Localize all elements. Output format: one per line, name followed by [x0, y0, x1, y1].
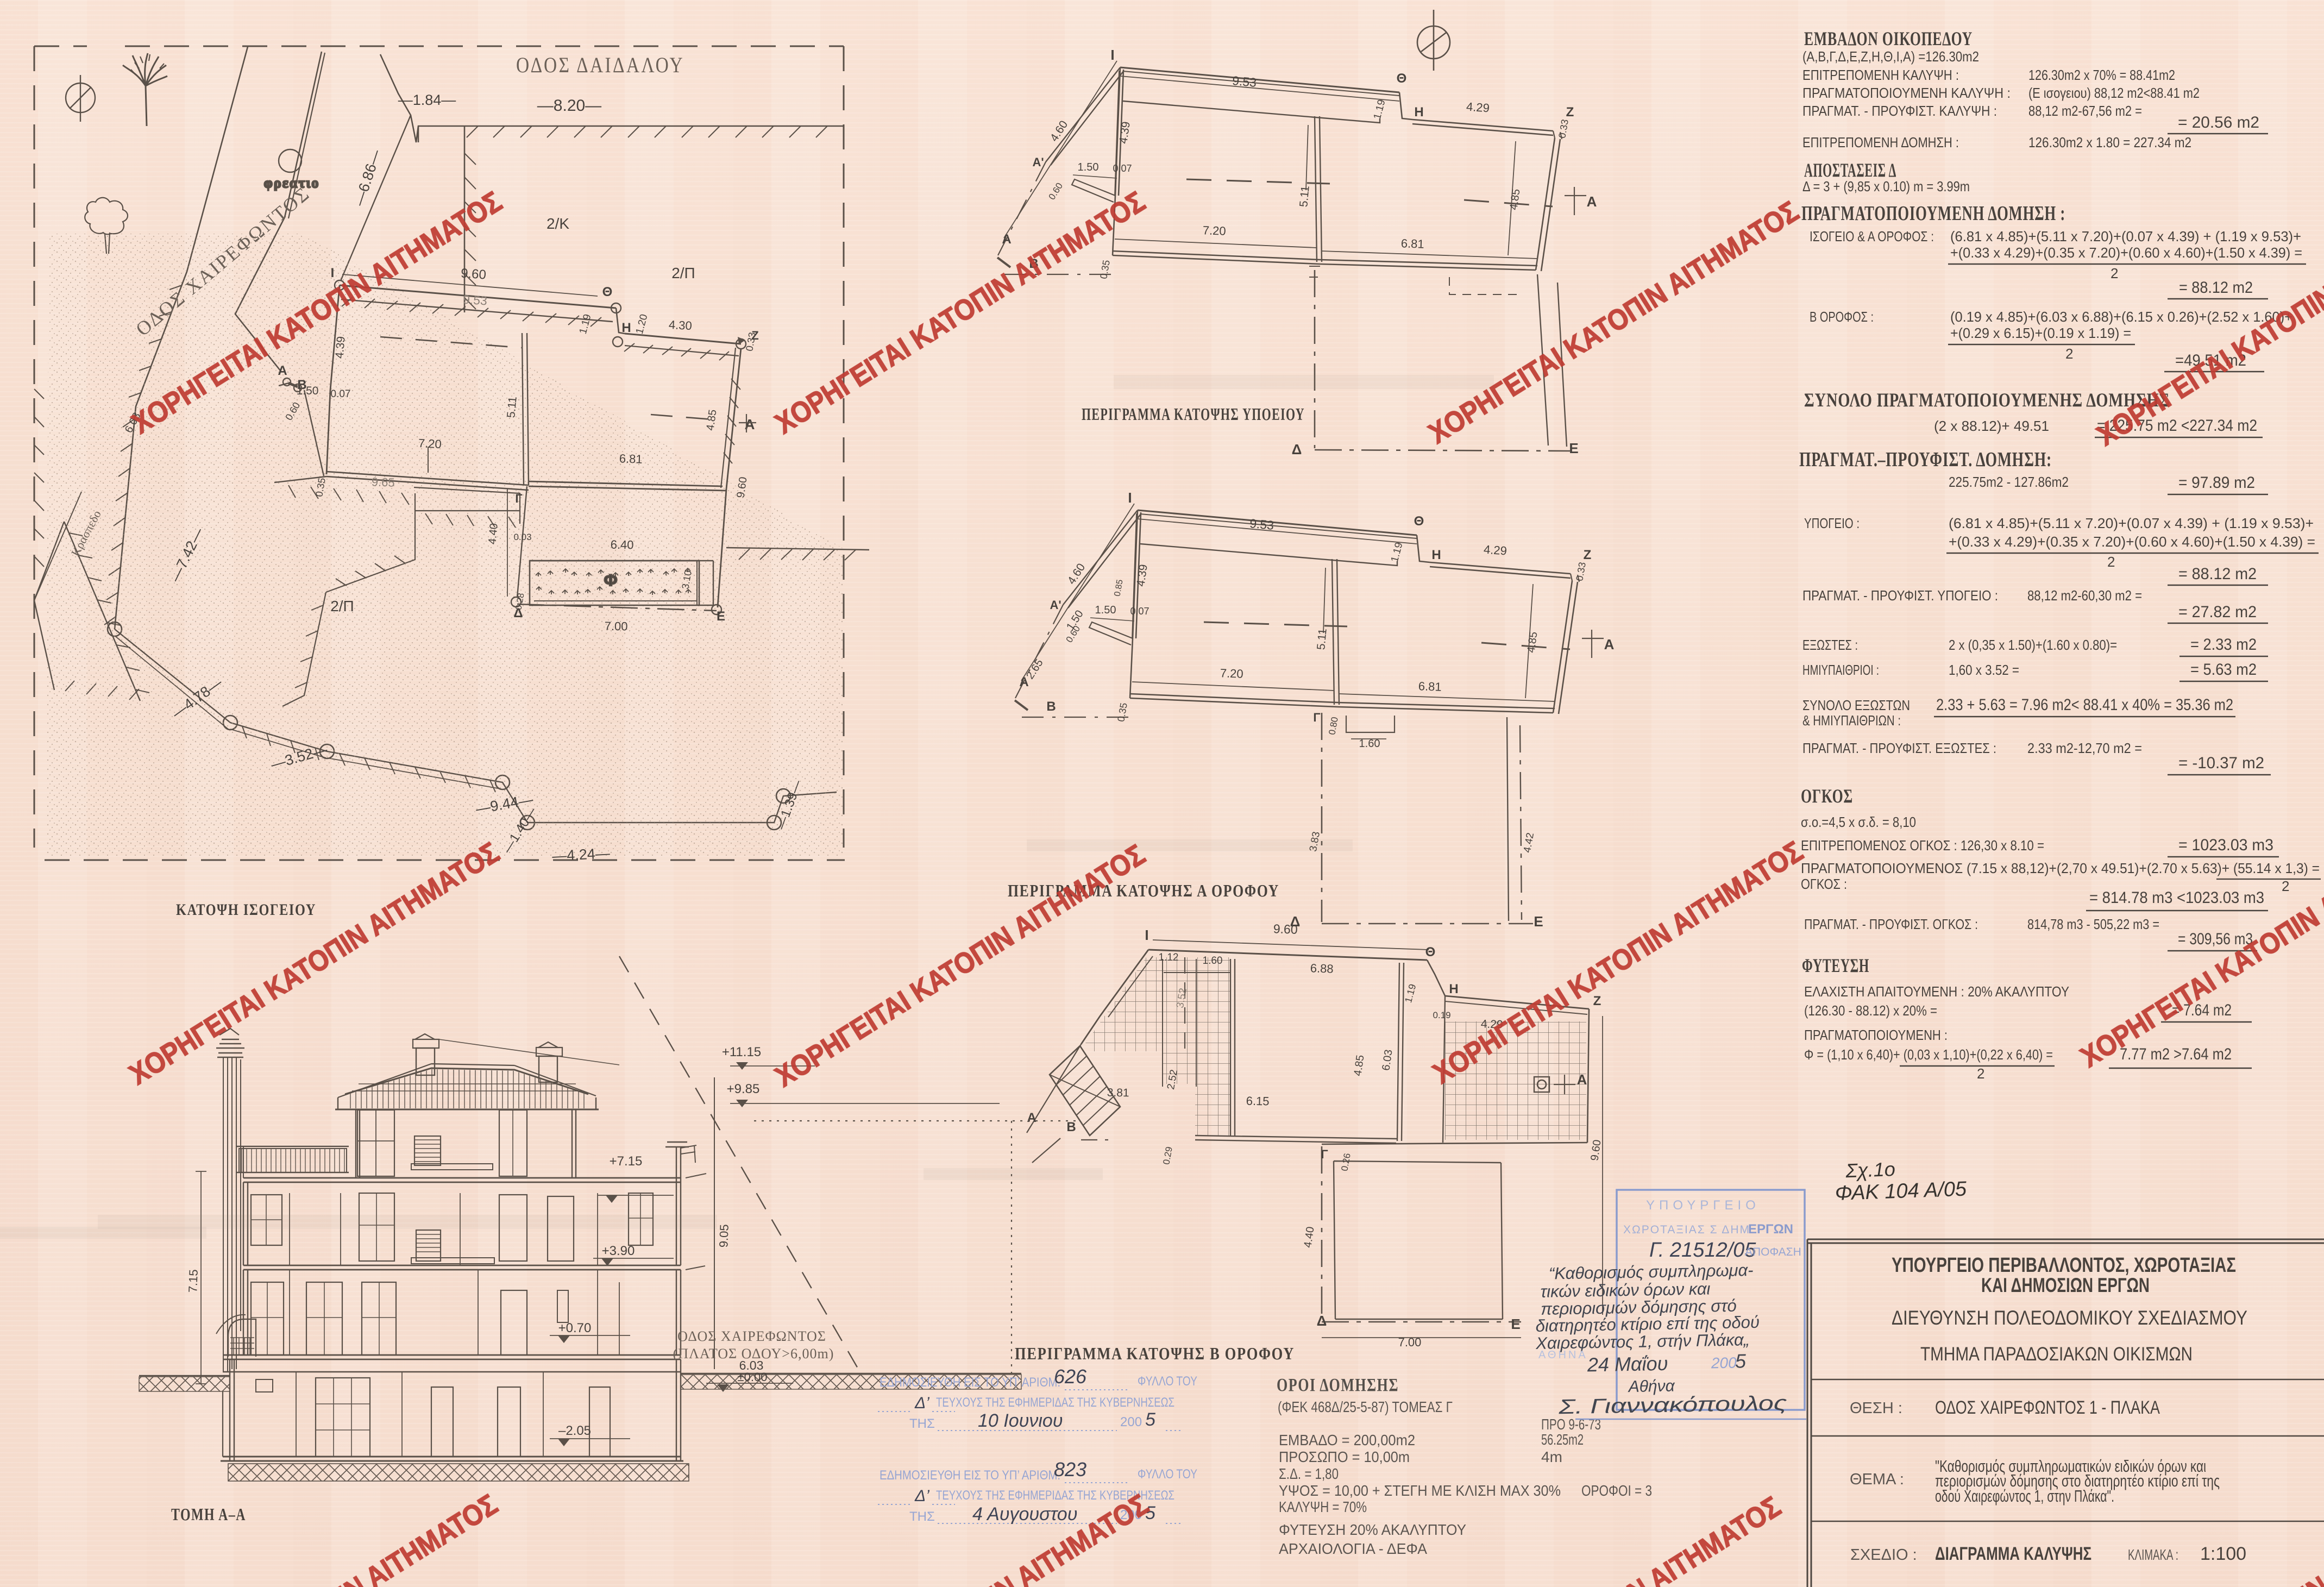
svg-text:B: B [1046, 699, 1056, 714]
svg-text:2: 2 [1977, 1065, 1984, 1082]
svg-text:1:100: 1:100 [2200, 1544, 2246, 1564]
svg-text:& ΗΜΙΥΠΑΙΘΡΙΩΝ :: & ΗΜΙΥΠΑΙΘΡΙΩΝ : [1802, 712, 1901, 729]
svg-text:I: I [1145, 927, 1148, 943]
svg-text:4.39: 4.39 [1134, 563, 1150, 587]
svg-text:6.88: 6.88 [1310, 961, 1334, 975]
svg-text:4.39: 4.39 [333, 336, 347, 359]
svg-text:823: 823 [1054, 1458, 1086, 1481]
svg-text:A': A' [1032, 155, 1044, 169]
svg-text:0.85: 0.85 [1113, 579, 1125, 597]
svg-text:ΗΜΙΥΠΑΙΘΡΙΟΙ :: ΗΜΙΥΠΑΙΘΡΙΟΙ : [1802, 662, 1879, 678]
svg-text:Γ. 21512/05: Γ. 21512/05 [1649, 1239, 1756, 1262]
svg-text:Δ: Δ [1317, 1313, 1327, 1329]
svg-text:H: H [1449, 982, 1458, 996]
svg-text:E: E [1569, 440, 1578, 456]
svg-text:9.60: 9.60 [1273, 921, 1298, 937]
svg-text:88,12 m2-67,56 m2 =: 88,12 m2-67,56 m2 = [2028, 103, 2142, 119]
svg-text:I: I [1128, 490, 1132, 506]
svg-text:ΧΟΡΗΓΕΙΤΑΙ ΚΑΤΟΠΙΝ ΑΙΤΗΜΑΤΟΣ: ΧΟΡΗΓΕΙΤΑΙ ΚΑΤΟΠΙΝ ΑΙΤΗΜΑΤΟΣ [770, 838, 1151, 1094]
svg-text:Θ: Θ [1425, 945, 1436, 959]
svg-text:ΦΥΛΛΟ ΤΟΥ: ΦΥΛΛΟ ΤΟΥ [1138, 1374, 1197, 1389]
svg-text:E: E [1511, 1316, 1520, 1332]
svg-text:200: 200 [1711, 1354, 1737, 1372]
svg-text:9.05: 9.05 [717, 1224, 731, 1248]
svg-text:1.20: 1.20 [634, 313, 650, 335]
svg-text:= -10.37 m2: = -10.37 m2 [2178, 754, 2264, 772]
svg-text:4.85: 4.85 [1352, 1054, 1366, 1077]
svg-text:ΕΔΗΜΟΣΙΕΥΘΗ ΕΙΣ ΤΟ ΥΠ’ ΑΡΙΘ: ΕΔΗΜΟΣΙΕΥΘΗ ΕΙΣ ΤΟ ΥΠ’ ΑΡΙΘΜ. [880, 1468, 1060, 1483]
svg-text:4.85: 4.85 [1525, 631, 1540, 654]
svg-text:ΕΛΑΧΙΣΤΗ ΑΠΑΙΤΟΥΜΕΝΗ : 20%: ΕΛΑΧΙΣΤΗ ΑΠΑΙΤΟΥΜΕΝΗ : 20% ΑΚΑΛΥΠΤΟΥ [1804, 983, 2069, 1000]
svg-text:A: A [1587, 193, 1597, 210]
svg-text:ΕΠΙΤΡΕΠΟΜΕΝΗ ΚΑΛΥΨΗ :: ΕΠΙΤΡΕΠΟΜΕΝΗ ΚΑΛΥΨΗ : [1802, 67, 1959, 83]
svg-text:5.11: 5.11 [1315, 628, 1329, 650]
svg-text:+(0.33 x 4.29)+(0.35 x 7.20)+(: +(0.33 x 4.29)+(0.35 x 7.20)+(0.60 x 4.6… [1950, 244, 2302, 261]
svg-text:0.07: 0.07 [1113, 163, 1132, 174]
svg-text:0.19: 0.19 [1433, 1010, 1450, 1020]
svg-text:626: 626 [1054, 1365, 1087, 1388]
svg-text:1.19: 1.19 [1403, 983, 1418, 1004]
svg-text:126.30m2 x 70% = 88.41m2: 126.30m2 x 70% = 88.41m2 [2028, 67, 2175, 83]
svg-text:σ.ο.=4,5 x σ.δ. = 8,10: σ.ο.=4,5 x σ.δ. = 8,10 [1801, 814, 1916, 830]
svg-text:+7.15: +7.15 [610, 1154, 643, 1169]
svg-text:= 97.89 m2: = 97.89 m2 [2178, 474, 2255, 492]
svg-text:6.03: 6.03 [1380, 1049, 1395, 1071]
svg-text:(126.30 - 88.12) x 20% =: (126.30 - 88.12) x 20% = [1804, 1002, 1937, 1019]
svg-text:ΠΡΑΓΜΑΤΟΠΟΙΟΥΜΕΝΗ ΔΟΜΗΣΗ :: ΠΡΑΓΜΑΤΟΠΟΙΟΥΜΕΝΗ ΔΟΜΗΣΗ : [1801, 202, 2065, 225]
svg-text:ΧΟΡΗΓΕΙΤΑΙ ΚΑΤΟΠΙΝ ΑΙΤΗΜΑΤΟΣ: ΧΟΡΗΓΕΙΤΑΙ ΚΑΤΟΠΙΝ ΑΙΤΗΜΑΤΟΣ [122, 1488, 504, 1587]
svg-text:A: A [278, 363, 287, 378]
svg-text:A: A [1027, 1111, 1036, 1125]
svg-text:4.29: 4.29 [1466, 100, 1490, 115]
svg-text:ΧΟΡΗΓΕΙΤΑΙ ΚΑΤΟΠΙΝ ΑΙΤΗΜΑΤΟΣ: ΧΟΡΗΓΕΙΤΑΙ ΚΑΤΟΠΙΝ ΑΙΤΗΜΑΤΟΣ [2084, 1488, 2324, 1587]
svg-text:814,78 m3 - 505,22 m3 =: 814,78 m3 - 505,22 m3 = [2027, 916, 2159, 932]
svg-text:(Ε ισογειου) 88,12 m2<88.41 m2: (Ε ισογειου) 88,12 m2<88.41 m2 [2028, 85, 2200, 101]
svg-text:ΑΡΧΑΙΟΛΟΓΙΑ - ΔΕΦΑ: ΑΡΧΑΙΟΛΟΓΙΑ - ΔΕΦΑ [1279, 1540, 1427, 1557]
svg-text:9.60: 9.60 [1588, 1139, 1603, 1162]
svg-text:ΥΠΟΥΡΓΕΙΟ: ΥΠΟΥΡΓΕΙΟ [1646, 1198, 1760, 1213]
svg-text:1,60 x 3.52 =: 1,60 x 3.52 = [1949, 662, 2019, 678]
svg-text:ΟΡΟΦΟΙ = 3: ΟΡΟΦΟΙ = 3 [1581, 1482, 1652, 1499]
svg-text:ΠΕΡΙΓΡΑΜΜΑ ΚΑΤΟΨΗΣ Β ΟΡΟΦΟΥ: ΠΕΡΙΓΡΑΜΜΑ ΚΑΤΟΨΗΣ Β ΟΡΟΦΟΥ [1015, 1344, 1295, 1363]
svg-text:ΧΟΡΗΓΕΙΤΑΙ ΚΑΤΟΠΙΝ ΑΙΤΗΜΑΤΟΣ: ΧΟΡΗΓΕΙΤΑΙ ΚΑΤΟΠΙΝ ΑΙΤΗΜΑΤΟΣ [124, 836, 505, 1092]
svg-text:Γ: Γ [1313, 711, 1320, 724]
svg-text:ΥΠΟΥΡΓΕΙΟ ΠΕΡΙΒΑΛΛΟΝΤΟΣ, ΧΩΡΟΤ: ΥΠΟΥΡΓΕΙΟ ΠΕΡΙΒΑΛΛΟΝΤΟΣ, ΧΩΡΟΤΑΞΙΑΣ [1892, 1254, 2236, 1277]
svg-text:ΣΥΝΟΛΟ ΕΞΩΣΤΩΝ: ΣΥΝΟΛΟ ΕΞΩΣΤΩΝ [1802, 697, 1910, 713]
svg-text:A': A' [1050, 598, 1061, 612]
svg-text:ΟΓΚΟΣ :: ΟΓΚΟΣ : [1801, 876, 1847, 892]
svg-text:9.53: 9.53 [462, 292, 487, 308]
svg-text:H: H [1414, 105, 1423, 120]
svg-text:4.30: 4.30 [668, 318, 692, 333]
svg-text:= 27.82 m2: = 27.82 m2 [2178, 603, 2257, 621]
svg-text:9.60: 9.60 [460, 266, 486, 282]
svg-text:1.19: 1.19 [577, 313, 594, 335]
svg-text:ΚΑΙ ΔΗΜΟΣΙΩΝ ΕΡΓΩΝ: ΚΑΙ ΔΗΜΟΣΙΩΝ ΕΡΓΩΝ [1981, 1274, 2150, 1296]
svg-text:4m: 4m [1541, 1448, 1562, 1465]
svg-text:Αθήνα: Αθήνα [1627, 1377, 1675, 1396]
svg-text:4.85: 4.85 [704, 409, 719, 431]
svg-text:ΑΠΟΣΤΑΣΕΙΣ Δ: ΑΠΟΣΤΑΣΕΙΣ Δ [1804, 159, 1896, 181]
svg-text:1.50: 1.50 [1078, 161, 1099, 173]
svg-text:ΚΑΛΥΨΗ = 70%: ΚΑΛΥΨΗ = 70% [1279, 1498, 1367, 1515]
svg-text:Φ: Φ [604, 572, 618, 589]
svg-text:ΕΞΩΣΤΕΣ :: ΕΞΩΣΤΕΣ : [1802, 637, 1858, 653]
svg-text:—6.86—: —6.86— [351, 148, 384, 208]
svg-text:= 88.12 m2: = 88.12 m2 [2178, 565, 2257, 583]
svg-text:2/K: 2/K [547, 215, 569, 232]
svg-text:ΧΟΡΗΓΕΙΤΑΙ ΚΑΤΟΠΙΝ ΑΙΤΗΜΑΤΟΣ: ΧΟΡΗΓΕΙΤΑΙ ΚΑΤΟΠΙΝ ΑΙΤΗΜΑΤΟΣ [1428, 835, 1809, 1090]
svg-text:ΠΡΑΓΜΑΤ. - ΠΡΟΥΦΙΣΤ. ΟΓΚΟΣ :: ΠΡΑΓΜΑΤ. - ΠΡΟΥΦΙΣΤ. ΟΓΚΟΣ : [1804, 916, 1978, 932]
svg-text:ΟΔΟΣ ΔΑΙΔΑΛΟΥ: ΟΔΟΣ ΔΑΙΔΑΛΟΥ [516, 53, 684, 77]
svg-text:5: 5 [1145, 1409, 1155, 1430]
svg-text:(2 x 88.12)+ 49.51: (2 x 88.12)+ 49.51 [1934, 418, 2049, 434]
svg-text:ΥΠΟΓΕΙΟ :: ΥΠΟΓΕΙΟ : [1804, 515, 1860, 531]
svg-text:ΤΕΥΧΟΥΣ ΤΗΣ ΕΦΗΜΕΡΙΔΑΣ ΤΗΣ ΚΥΒ: ΤΕΥΧΟΥΣ ΤΗΣ ΕΦΗΜΕΡΙΔΑΣ ΤΗΣ ΚΥΒΕΡΝΗΣΕΩΣ [936, 1395, 1174, 1410]
svg-text:ΟΔΟΣ ΧΑΙΡΕΦΩΝΤΟΣ 1 - ΠΛΑΚΑ: ΟΔΟΣ ΧΑΙΡΕΦΩΝΤΟΣ 1 - ΠΛΑΚΑ [1935, 1397, 2160, 1418]
svg-text:2/Π: 2/Π [330, 598, 354, 614]
svg-text:ΟΡΟΙ ΔΟΜΗΣΗΣ: ΟΡΟΙ ΔΟΜΗΣΗΣ [1277, 1375, 1399, 1395]
svg-text:A: A [1002, 232, 1011, 247]
svg-text:1.19: 1.19 [1389, 541, 1405, 563]
svg-text:(6.81 x 4.85)+(5.11 x 7.20)+(0: (6.81 x 4.85)+(5.11 x 7.20)+(0.07 x 4.39… [1950, 228, 2301, 244]
svg-text:24 Μαΐου: 24 Μαΐου [1587, 1352, 1668, 1376]
svg-text:I: I [1110, 47, 1114, 63]
svg-text:I: I [331, 266, 335, 280]
svg-text:+3.90: +3.90 [602, 1244, 635, 1258]
svg-text:6.81: 6.81 [1400, 236, 1424, 250]
svg-text:ΧΟΡΗΓΕΙΤΑΙ ΚΑΤΟΠΙΝ ΑΙΤΗΜΑΤΟΣ: ΧΟΡΗΓΕΙΤΑΙ ΚΑΤΟΠΙΝ ΑΙΤΗΜΑΤΟΣ [773, 1488, 1154, 1587]
svg-text:(ΦΕΚ 468Δ/25-5-87) ΤΟΜΕΑΣ Γ: (ΦΕΚ 468Δ/25-5-87) ΤΟΜΕΑΣ Γ [1278, 1398, 1453, 1415]
svg-text:ΠΡΑΓΜΑΤ. - ΠΡΟΥΦΙΣΤ. ΚΑΛΥΨΗ :: ΠΡΑΓΜΑΤ. - ΠΡΟΥΦΙΣΤ. ΚΑΛΥΨΗ : [1802, 103, 1997, 119]
svg-text:1.60: 1.60 [1203, 955, 1223, 967]
svg-text:Θ: Θ [1397, 71, 1407, 86]
svg-text:200: 200 [1120, 1415, 1142, 1429]
svg-text:ΠΡΑΓΜΑΤ. - ΠΡΟΥΦΙΣΤ. ΥΠΟΓΕΙΟ :: ΠΡΑΓΜΑΤ. - ΠΡΟΥΦΙΣΤ. ΥΠΟΓΕΙΟ : [1802, 587, 1998, 604]
svg-text:ΘΕΣΗ :: ΘΕΣΗ : [1850, 1400, 1902, 1417]
svg-text:= 88.12 m2: = 88.12 m2 [2179, 279, 2253, 297]
svg-text:7.15: 7.15 [186, 1269, 200, 1293]
svg-text:9.65: 9.65 [371, 475, 395, 489]
svg-text:= 2.33 m2: = 2.33 m2 [2190, 636, 2257, 654]
svg-text:H: H [621, 321, 631, 335]
svg-text:(Α,Β,Γ,Δ,Ε,Ζ,Η,Θ,Ι,Α) =126.30m: (Α,Β,Γ,Δ,Ε,Ζ,Η,Θ,Ι,Α) =126.30m2 [1802, 48, 1979, 65]
svg-text:ΙΣΟΓΕΙΟ & Α ΟΡΟΦΟΣ :: ΙΣΟΓΕΙΟ & Α ΟΡΟΦΟΣ : [1810, 228, 1934, 244]
svg-text:ΤΟΜΗ Α–Α: ΤΟΜΗ Α–Α [171, 1504, 246, 1524]
svg-text:2: 2 [2107, 554, 2115, 570]
svg-text:ΠΕΡΙΓΡΑΜΜΑ ΚΑΤΟΨΗΣ ΥΠΟΕΙΟΥ: ΠΕΡΙΓΡΑΜΜΑ ΚΑΤΟΨΗΣ ΥΠΟΕΙΟΥ [1082, 404, 1305, 424]
svg-text:4.40: 4.40 [486, 523, 500, 545]
svg-text:0.07: 0.07 [1130, 606, 1149, 617]
svg-text:2.33 m2-12,70 m2 =: 2.33 m2-12,70 m2 = [2027, 740, 2142, 756]
svg-text:Φ = (1,10 x 6,40)+ (0,03 x 1,1: Φ = (1,10 x 6,40)+ (0,03 x 1,10)+(0,22 x… [1804, 1046, 2053, 1063]
svg-text:ΧΟΡΗΓΕΙΤΑΙ ΚΑΤΟΠΙΝ ΑΙΤΗΜΑΤΟΣ: ΧΟΡΗΓΕΙΤΑΙ ΚΑΤΟΠΙΝ ΑΙΤΗΜΑΤΟΣ [1423, 195, 1805, 450]
svg-text:+(0.33 x 4.29)+(0.35 x 7.20)+(: +(0.33 x 4.29)+(0.35 x 7.20)+(0.60 x 4.6… [1949, 534, 2315, 550]
svg-text:B: B [1066, 1120, 1076, 1134]
svg-text:οδού Χαιρεφώντος 1, στην Πλάκα: οδού Χαιρεφώντος 1, στην Πλάκα". [1935, 1486, 2114, 1506]
svg-text:Σ. Γιαννακόπουλος: Σ. Γιαννακόπουλος [1558, 1392, 1788, 1419]
svg-text:ΦΑΚ 104 Α/05: ΦΑΚ 104 Α/05 [1835, 1177, 1967, 1205]
svg-text:ΔΙΑΓΡΑΜΜΑ ΚΑΛΥΨΗΣ: ΔΙΑΓΡΑΜΜΑ ΚΑΛΥΨΗΣ [1935, 1544, 2091, 1564]
svg-text:Θ: Θ [1414, 514, 1424, 529]
svg-text:A: A [1577, 1071, 1587, 1088]
svg-text:ΣΧΕΔΙΟ :: ΣΧΕΔΙΟ : [1850, 1546, 1917, 1564]
svg-text:2/Π: 2/Π [671, 265, 695, 281]
svg-text:56.25m2: 56.25m2 [1541, 1431, 1584, 1448]
svg-text:ΤΗΣ: ΤΗΣ [909, 1509, 935, 1524]
svg-text:4.85: 4.85 [1508, 188, 1522, 211]
svg-text:225.75m2 - 127.86m2: 225.75m2 - 127.86m2 [1949, 474, 2069, 490]
svg-text:E: E [1534, 913, 1543, 930]
svg-text:ΧΟΡΗΓΕΙΤΑΙ ΚΑΤΟΠΙΝ ΑΙΤΗΜΑΤΟΣ: ΧΟΡΗΓΕΙΤΑΙ ΚΑΤΟΠΙΝ ΑΙΤΗΜΑΤΟΣ [770, 185, 1151, 441]
svg-text:Σ.Δ. = 1,80: Σ.Δ. = 1,80 [1279, 1465, 1339, 1482]
svg-text:0.33: 0.33 [1574, 561, 1588, 582]
svg-text:0.03: 0.03 [513, 532, 531, 542]
svg-text:Δ’: Δ’ [914, 1394, 930, 1412]
svg-text:0.35: 0.35 [1115, 702, 1129, 723]
svg-text:ΟΔΟΣ ΧΑΙΡΕΦΩΝΤΟΣ: ΟΔΟΣ ΧΑΙΡΕΦΩΝΤΟΣ [677, 1328, 826, 1344]
svg-text:ΑΠΟΦΑΣΗ: ΑΠΟΦΑΣΗ [1745, 1246, 1801, 1258]
svg-text:0.07: 0.07 [331, 388, 351, 400]
svg-text:0.33: 0.33 [1556, 118, 1571, 139]
svg-text:10 Ιουνιου: 10 Ιουνιου [978, 1410, 1063, 1431]
svg-text:7.77 m2 >7.64 m2: 7.77 m2 >7.64 m2 [2120, 1045, 2232, 1063]
svg-text:ΠΡΑΓΜΑΤΟΠΟΙΟΥΜΕΝΗ :: ΠΡΑΓΜΑΤΟΠΟΙΟΥΜΕΝΗ : [1804, 1027, 1948, 1043]
svg-text:ΚΑΤΟΨΗ ΙΣΟΓΕΙΟΥ: ΚΑΤΟΨΗ ΙΣΟΓΕΙΟΥ [176, 901, 316, 919]
svg-text:ΠΡΑΓΜΑΤ.–ΠΡΟΥΦΙΣΤ. ΔΟΜΗΣΗ:: ΠΡΑΓΜΑΤ.–ΠΡΟΥΦΙΣΤ. ΔΟΜΗΣΗ: [1799, 448, 2052, 471]
svg-text:Δ = 3 + (9,85 x 0.10) m = 3.99: Δ = 3 + (9,85 x 0.10) m = 3.99m [1802, 178, 1970, 195]
svg-text:Σχ.1ο: Σχ.1ο [1845, 1158, 1896, 1182]
svg-text:Δ: Δ [513, 606, 523, 620]
svg-text:ΤΜΗΜΑ ΠΑΡΑΔΟΣΙΑΚΩΝ ΟΙΚΙΣΜΩΝ: ΤΜΗΜΑ ΠΑΡΑΔΟΣΙΑΚΩΝ ΟΙΚΙΣΜΩΝ [1920, 1344, 2193, 1365]
svg-text:ΕΡΓΩΝ: ΕΡΓΩΝ [1748, 1222, 1793, 1237]
svg-text:ΕΜΒΑΔΟΝ ΟΙΚΟΠΕΔΟΥ: ΕΜΒΑΔΟΝ ΟΙΚΟΠΕΔΟΥ [1804, 28, 1973, 49]
svg-text:4.60: 4.60 [1048, 118, 1071, 144]
svg-text:1.12: 1.12 [1159, 952, 1179, 963]
svg-text:= 20.56 m2: = 20.56 m2 [2178, 114, 2259, 131]
svg-text:ΕΠΙΤΡΕΠΟΜΕΝΟΣ ΟΓΚΟΣ : 126,30 x: ΕΠΙΤΡΕΠΟΜΕΝΟΣ ΟΓΚΟΣ : 126,30 x 8.10 = [1801, 837, 2044, 854]
svg-text:5.11: 5.11 [505, 396, 519, 418]
svg-text:ΧΟΡΗΓΕΙΤΑΙ ΚΑΤΟΠΙΝ ΑΙΤΗΜΑΤΟΣ: ΧΟΡΗΓΕΙΤΑΙ ΚΑΤΟΠΙΝ ΑΙΤΗΜΑΤΟΣ [1405, 1490, 1787, 1587]
svg-text:4.60: 4.60 [1065, 561, 1088, 587]
svg-text:ΕΠΙΤΡΕΠΟΜΕΝΗ ΔΟΜΗΣΗ :: ΕΠΙΤΡΕΠΟΜΕΝΗ ΔΟΜΗΣΗ : [1802, 134, 1959, 150]
svg-text:ΕΔΗΜΟΣΙΕΥΘΗ ΕΙΣ ΤΟ ΥΠ’ ΑΡΙΘ: ΕΔΗΜΟΣΙΕΥΘΗ ΕΙΣ ΤΟ ΥΠ’ ΑΡΙΘΜ. [880, 1375, 1060, 1390]
svg-text:0.29: 0.29 [1161, 1146, 1174, 1165]
svg-text:ΦΥΤΕΥΣΗ: ΦΥΤΕΥΣΗ [1802, 955, 1869, 976]
svg-text:H: H [1431, 548, 1441, 562]
svg-text:1.60: 1.60 [1359, 738, 1380, 750]
svg-text:ΕΜΒΑΔΟ = 200,00m2: ΕΜΒΑΔΟ = 200,00m2 [1279, 1432, 1415, 1448]
svg-text:ΣΥΝΟΛΟ ΠΡΑΓΜΑΤΟΠΟΙΟΥΜΕΝΗΣ ΔΟ: ΣΥΝΟΛΟ ΠΡΑΓΜΑΤΟΠΟΙΟΥΜΕΝΗΣ ΔΟΜΗΣΗΣ [1804, 389, 2170, 411]
svg-text:5: 5 [1735, 1350, 1747, 1372]
svg-text:2: 2 [2065, 346, 2073, 362]
svg-text:ΧΩΡΟΤΑΞΙΑΣ Σ ΔΗΜ.: ΧΩΡΟΤΑΞΙΑΣ Σ ΔΗΜ. [1623, 1224, 1755, 1236]
svg-text:9.53: 9.53 [1249, 516, 1274, 532]
svg-text:ΠΡΟΣΩΠΟ = 10,00m: ΠΡΟΣΩΠΟ = 10,00m [1279, 1448, 1410, 1465]
svg-text:6.40: 6.40 [611, 538, 634, 552]
svg-text:7.20: 7.20 [1220, 666, 1243, 680]
svg-text:3.81: 3.81 [1107, 1087, 1129, 1100]
svg-text:126.30m2 x 1.80 = 227.34 m2: 126.30m2 x 1.80 = 227.34 m2 [2028, 134, 2191, 150]
svg-text:7.20: 7.20 [418, 436, 442, 451]
svg-text:0.35: 0.35 [1098, 259, 1112, 280]
svg-text:88,12 m2-60,30 m2 =: 88,12 m2-60,30 m2 = [2027, 587, 2142, 604]
svg-text:= 5.63 m2: = 5.63 m2 [2190, 661, 2257, 679]
svg-text:= 814.78 m3 <1023.03 m3: = 814.78 m3 <1023.03 m3 [2089, 889, 2264, 907]
svg-text:ΘΕΜΑ :: ΘΕΜΑ : [1850, 1471, 1904, 1488]
svg-text:—8.20—: —8.20— [537, 97, 601, 115]
svg-text:6.81: 6.81 [619, 451, 643, 466]
svg-text:4.29: 4.29 [1483, 543, 1507, 558]
svg-text:ΦΥΛΛΟ ΤΟΥ: ΦΥΛΛΟ ΤΟΥ [1138, 1467, 1197, 1482]
svg-text:—4.24—: —4.24— [552, 845, 611, 864]
svg-text:0.60: 0.60 [1047, 181, 1065, 202]
svg-text:ΔΙΕΥΘΥΝΣΗ ΠΟΛΕΟΔΟΜΙΚΟΥ ΣΧΕΔΙΑΣ: ΔΙΕΥΘΥΝΣΗ ΠΟΛΕΟΔΟΜΙΚΟΥ ΣΧΕΔΙΑΣΜΟΥ [1892, 1307, 2247, 1329]
svg-text:–2.05: –2.05 [558, 1423, 591, 1438]
svg-text:4.42: 4.42 [1522, 832, 1536, 854]
svg-text:Z: Z [1584, 548, 1592, 562]
svg-text:Γ: Γ [515, 492, 522, 505]
svg-text:0.26: 0.26 [1339, 1152, 1352, 1172]
svg-text:A: A [1604, 636, 1615, 653]
svg-text:7.20: 7.20 [1202, 223, 1226, 237]
svg-text:2 x (0,35 x 1.50)+(1.60 x 0.8: 2 x (0,35 x 1.50)+(1.60 x 0.80)= [1949, 637, 2117, 653]
svg-text:2.33 + 5.63 = 7.96 m2< 88.41 x: 2.33 + 5.63 = 7.96 m2< 88.41 x 40% = 35.… [1936, 696, 2233, 714]
svg-text:ΟΓΚΟΣ: ΟΓΚΟΣ [1801, 785, 1853, 807]
svg-text:4.39: 4.39 [1117, 121, 1132, 145]
svg-text:2: 2 [2111, 265, 2118, 281]
svg-text:Θ: Θ [602, 285, 613, 299]
svg-text:Z: Z [751, 329, 758, 342]
svg-text:—1.84—: —1.84— [398, 92, 456, 108]
svg-text:ΥΨΟΣ = 10,00 + ΣΤΕΓΗ ΜΕ ΚΛΙΣΗ: ΥΨΟΣ = 10,00 + ΣΤΕΓΗ ΜΕ ΚΛΙΣΗ MAX 30% [1279, 1482, 1561, 1499]
svg-text:Z: Z [1566, 105, 1574, 120]
svg-text:2: 2 [2282, 878, 2289, 894]
svg-text:= 1023.03 m3: = 1023.03 m3 [2178, 836, 2273, 854]
svg-text:6.03: 6.03 [739, 1358, 764, 1372]
svg-text:+9.85: +9.85 [727, 1082, 760, 1096]
svg-text:ΑΘΗΝΑ: ΑΘΗΝΑ [1538, 1349, 1588, 1361]
svg-text:0.80: 0.80 [1327, 716, 1340, 736]
svg-text:ΠΡΑΓΜΑΤΟΠΟΙΟΥΜΕΝΗ ΚΑΛΥΨΗ :: ΠΡΑΓΜΑΤΟΠΟΙΟΥΜΕΝΗ ΚΑΛΥΨΗ : [1802, 85, 2011, 101]
svg-text:+(0.29 x 6.15)+(0.19 x 1.19) =: +(0.29 x 6.15)+(0.19 x 1.19) = [1950, 325, 2131, 341]
svg-text:7.00: 7.00 [1398, 1335, 1422, 1349]
svg-text:4 Αυγουστου: 4 Αυγουστου [972, 1504, 1077, 1525]
svg-text:6.81: 6.81 [1418, 679, 1442, 693]
svg-text:ΠΡΑΓΜΑΤ. - ΠΡΟΥΦΙΣΤ. ΕΞΩΣΤΕΣ :: ΠΡΑΓΜΑΤ. - ΠΡΟΥΦΙΣΤ. ΕΞΩΣΤΕΣ : [1802, 740, 1996, 756]
svg-text:1.19: 1.19 [1372, 98, 1388, 121]
svg-text:1.50: 1.50 [1064, 608, 1086, 632]
svg-text:6.15: 6.15 [1246, 1094, 1270, 1108]
svg-text:Δ: Δ [1292, 441, 1302, 457]
svg-text:Β ΟΡΟΦΟΣ :: Β ΟΡΟΦΟΣ : [1810, 309, 1874, 325]
svg-text:5.11: 5.11 [1297, 185, 1311, 208]
svg-text:Δ’: Δ’ [914, 1487, 930, 1505]
svg-text:ΤΗΣ: ΤΗΣ [909, 1416, 935, 1431]
svg-text:4.40: 4.40 [1302, 1226, 1316, 1249]
svg-text:+0.70: +0.70 [558, 1321, 592, 1335]
svg-text:(0.19 x 4.85)+(6.03 x 6.88)+(6: (0.19 x 4.85)+(6.03 x 6.88)+(6.15 x 0.26… [1950, 309, 2292, 325]
svg-text:1.50: 1.50 [1095, 604, 1116, 616]
svg-text:ΦΥΤΕΥΣΗ 20% ΑΚΑΛΥΠΤΟΥ: ΦΥΤΕΥΣΗ 20% ΑΚΑΛΥΠΤΟΥ [1279, 1521, 1466, 1538]
svg-text:9.53: 9.53 [1232, 73, 1257, 90]
svg-text:(6.81 x 4.85)+(5.11 x 7.20)+(0: (6.81 x 4.85)+(5.11 x 7.20)+(0.07 x 4.39… [1949, 515, 2314, 531]
svg-text:ΚΛΙΜΑΚΑ :: ΚΛΙΜΑΚΑ : [2128, 1546, 2178, 1563]
svg-text:E: E [717, 609, 725, 624]
svg-text:7.00: 7.00 [605, 619, 628, 633]
svg-text:ΠΡΑΓΜΑΤΟΠΟΙΟΥΜΕΝΟΣ (7.15 x 88: ΠΡΑΓΜΑΤΟΠΟΙΟΥΜΕΝΟΣ (7.15 x 88,12)+(2,70 … [1801, 860, 2320, 876]
svg-text:+11.15: +11.15 [722, 1045, 761, 1059]
svg-text:Γ: Γ [1321, 1147, 1328, 1161]
